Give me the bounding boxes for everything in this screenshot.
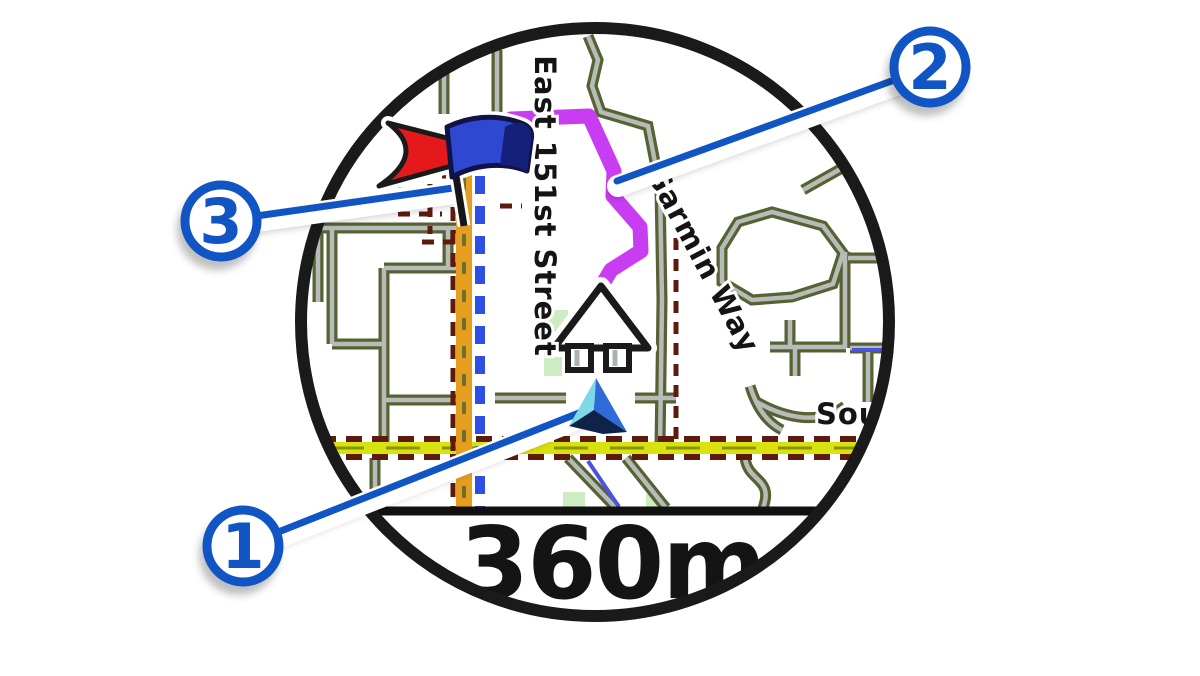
- callout-3: 3: [177, 185, 257, 270]
- callout-2-number: 2: [908, 31, 951, 104]
- figure-canvas: East 151st Street Garmin Way Sout 360m: [0, 0, 1200, 676]
- callout-1: 1: [199, 510, 279, 595]
- destination-flag-shading: [500, 123, 532, 171]
- callout-1-number: 1: [221, 510, 264, 583]
- street-label-east-151st: East 151st Street: [528, 55, 562, 357]
- watch-map-figure: East 151st Street Garmin Way Sout 360m: [0, 0, 1200, 676]
- callout-2: 2: [886, 31, 966, 116]
- callout-3-number: 3: [199, 185, 242, 258]
